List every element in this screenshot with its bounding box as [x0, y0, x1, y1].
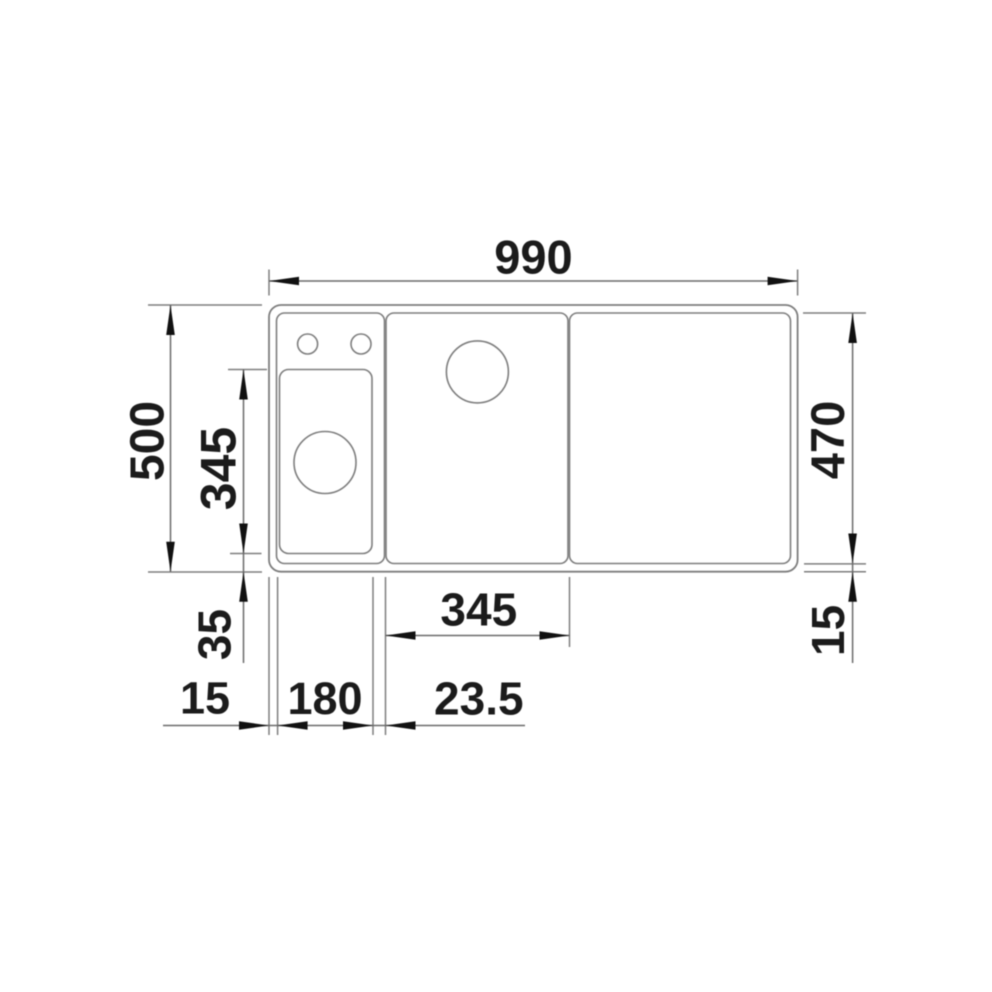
svg-text:500: 500 [122, 401, 175, 481]
svg-text:345: 345 [440, 584, 517, 636]
svg-text:345: 345 [191, 427, 247, 510]
svg-text:35: 35 [189, 609, 241, 660]
svg-text:990: 990 [494, 231, 572, 284]
svg-text:180: 180 [287, 673, 362, 724]
svg-text:23.5: 23.5 [434, 673, 524, 725]
svg-text:15: 15 [802, 605, 854, 656]
svg-text:470: 470 [801, 401, 854, 479]
svg-text:15: 15 [180, 673, 230, 724]
